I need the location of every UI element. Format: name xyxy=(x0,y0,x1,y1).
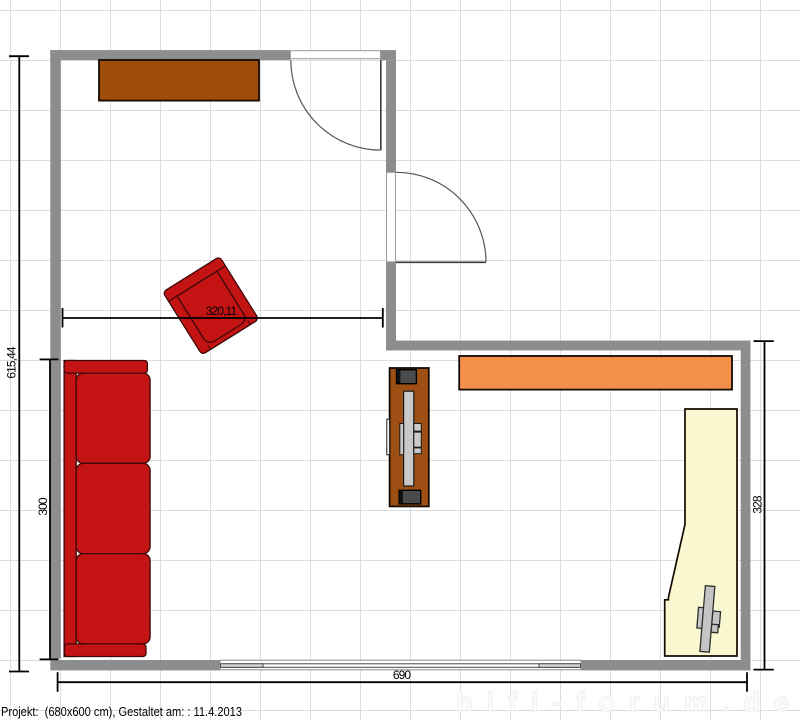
svg-text:320,11: 320,11 xyxy=(206,304,238,318)
svg-text:690: 690 xyxy=(393,668,412,682)
svg-text:300: 300 xyxy=(36,497,50,516)
svg-text:Projekt: (680x600 cm), Gestal: Projekt: (680x600 cm), Gestaltet am: : 1… xyxy=(1,705,242,719)
svg-text:328: 328 xyxy=(751,495,765,514)
svg-text:hifi-forum.de: hifi-forum.de xyxy=(456,687,800,717)
svg-text:615,44: 615,44 xyxy=(5,346,19,379)
